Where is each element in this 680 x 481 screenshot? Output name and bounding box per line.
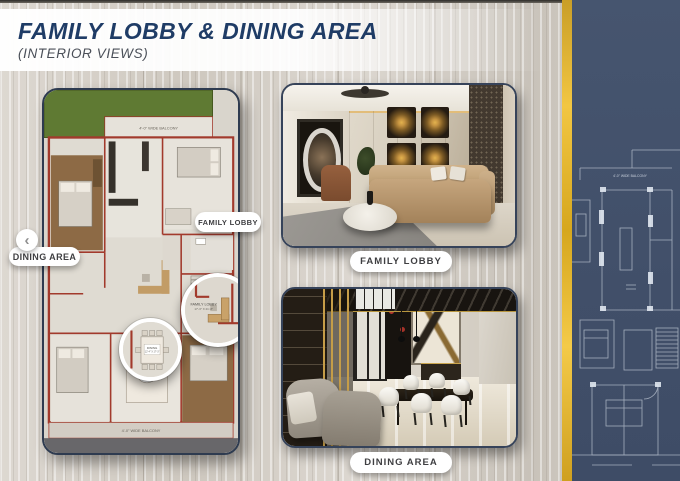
ceiling-fan-icon <box>341 89 389 98</box>
plan-balcony-bottom-label: 4'-0" WIDE BALCONY <box>122 428 161 433</box>
gold-accent-stripe <box>562 0 572 481</box>
family-lobby-photo <box>281 83 517 248</box>
blueprint-balcony-label: 4'-0" WIDE BALCONY <box>613 174 647 178</box>
round-coffee-table <box>343 203 397 231</box>
page-subtitle: (INTERIOR VIEWS) <box>18 46 545 61</box>
white-pillow <box>449 166 466 181</box>
blueprint-panel: 4'-0" WIDE BALCONY <box>572 0 680 481</box>
floor-plan-card: 4'-0" WIDE BALCONY <box>42 88 240 455</box>
gray-armchair <box>322 390 383 448</box>
family-lobby-photo-label: FAMILY LOBBY <box>350 251 452 272</box>
dining-magnifier[interactable]: DINING 12'-4" X 17'-3" <box>119 318 182 381</box>
magnifier-dining-dims: 12'-4" X 17'-3" <box>145 352 160 354</box>
magnifier-family-dims: 17'-3" X 21'-8" <box>194 307 213 311</box>
header: FAMILY LOBBY & DINING AREA (INTERIOR VIE… <box>0 9 545 71</box>
dining-chair <box>379 387 399 417</box>
presentation-slide: FAMILY LOBBY & DINING AREA (INTERIOR VIE… <box>0 0 680 481</box>
white-pillow <box>430 166 446 181</box>
carousel-prev-button[interactable]: ‹ <box>16 229 38 251</box>
pendant-light-icon <box>416 311 417 337</box>
dining-area-callout-pill: DINING AREA <box>9 247 80 266</box>
floor-plan-drawing: 4'-0" WIDE BALCONY <box>44 90 238 453</box>
skylight <box>355 289 395 309</box>
dining-area-photo-label: DINING AREA <box>350 452 452 473</box>
plan-balcony-top-label: 4'-0" WIDE BALCONY <box>139 126 178 131</box>
rose-art-tile <box>421 107 450 138</box>
throw-blanket <box>287 391 318 425</box>
dining-chair <box>411 393 432 425</box>
vase <box>367 191 373 205</box>
family-lobby-callout-pill: FAMILY LOBBY <box>195 212 261 232</box>
family-lobby-magnifier[interactable]: FAMILY LOBBY 17'-3" X 21'-8" <box>181 273 240 347</box>
page-title: FAMILY LOBBY & DINING AREA <box>18 19 545 43</box>
leather-armchair <box>321 165 351 201</box>
blueprint-drawing: 4'-0" WIDE BALCONY <box>572 0 680 481</box>
pendant-light-icon <box>401 311 402 337</box>
chevron-left-icon: ‹ <box>25 233 30 248</box>
gold-rose-art-grid <box>387 107 449 173</box>
rose-art-tile <box>387 107 416 138</box>
window <box>353 309 387 381</box>
dining-area-photo <box>281 287 518 448</box>
magnifier-dining-label: DINING <box>147 346 158 350</box>
dining-chair <box>441 395 462 427</box>
